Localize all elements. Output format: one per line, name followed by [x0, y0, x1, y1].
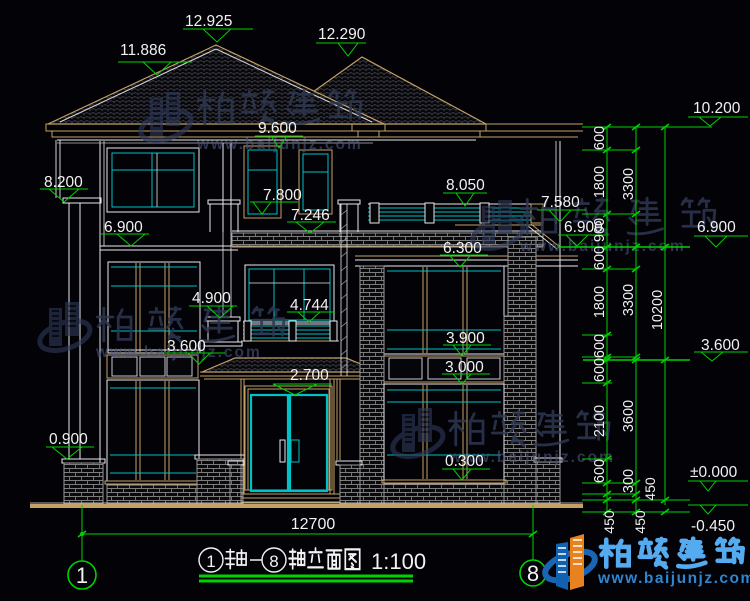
svg-text:www.baijunjz.com: www.baijunjz.com [196, 136, 363, 153]
svg-text:8: 8 [527, 561, 539, 586]
svg-text:3600: 3600 [621, 400, 637, 432]
svg-text:300: 300 [621, 469, 637, 493]
svg-text:11.886: 11.886 [120, 42, 166, 59]
svg-text:10.200: 10.200 [693, 100, 741, 117]
svg-text:450: 450 [632, 510, 648, 534]
svg-text:12700: 12700 [291, 516, 336, 533]
svg-text:www.baijunjz.com: www.baijunjz.com [597, 570, 750, 587]
svg-text:1:100: 1:100 [371, 549, 426, 574]
svg-text:600: 600 [592, 126, 608, 150]
svg-text:6.300: 6.300 [443, 240, 482, 257]
svg-text:7.246: 7.246 [291, 207, 330, 224]
svg-text:3.000: 3.000 [445, 359, 484, 376]
svg-text:8: 8 [269, 552, 278, 571]
svg-text:1: 1 [206, 552, 215, 571]
svg-text:900: 900 [592, 218, 608, 242]
svg-text:2100: 2100 [592, 405, 608, 437]
svg-text:3.600: 3.600 [701, 337, 740, 354]
svg-text:9.600: 9.600 [258, 120, 297, 137]
svg-text:3.900: 3.900 [446, 330, 485, 347]
svg-text:12.925: 12.925 [185, 13, 232, 30]
svg-text:±0.000: ±0.000 [690, 464, 738, 481]
svg-text:600: 600 [592, 246, 608, 270]
svg-text:4.744: 4.744 [290, 297, 329, 314]
svg-text:8.200: 8.200 [44, 174, 83, 191]
svg-text:600: 600 [592, 358, 608, 382]
svg-text:12.290: 12.290 [318, 26, 366, 43]
svg-text:7.800: 7.800 [263, 187, 302, 204]
svg-text:0.900: 0.900 [49, 431, 88, 448]
svg-text:10200: 10200 [650, 290, 666, 330]
svg-text:4.900: 4.900 [192, 290, 231, 307]
svg-text:7.580: 7.580 [541, 194, 580, 211]
svg-text:0.300: 0.300 [445, 453, 484, 470]
svg-text:2.700: 2.700 [290, 367, 329, 384]
svg-text:450: 450 [642, 477, 658, 501]
svg-text:8.050: 8.050 [446, 177, 485, 194]
svg-text:600: 600 [592, 459, 608, 483]
svg-text:3.600: 3.600 [167, 338, 206, 355]
svg-text:450: 450 [601, 510, 617, 534]
svg-text:1800: 1800 [592, 286, 608, 318]
svg-text:1: 1 [76, 563, 88, 588]
svg-text:6.900: 6.900 [104, 219, 143, 236]
svg-text:3300: 3300 [621, 168, 637, 200]
svg-text:3300: 3300 [621, 284, 637, 316]
svg-text:600: 600 [592, 334, 608, 358]
svg-text:6.900: 6.900 [697, 219, 736, 236]
svg-text:1800: 1800 [592, 166, 608, 198]
svg-text:-0.450: -0.450 [691, 518, 735, 535]
